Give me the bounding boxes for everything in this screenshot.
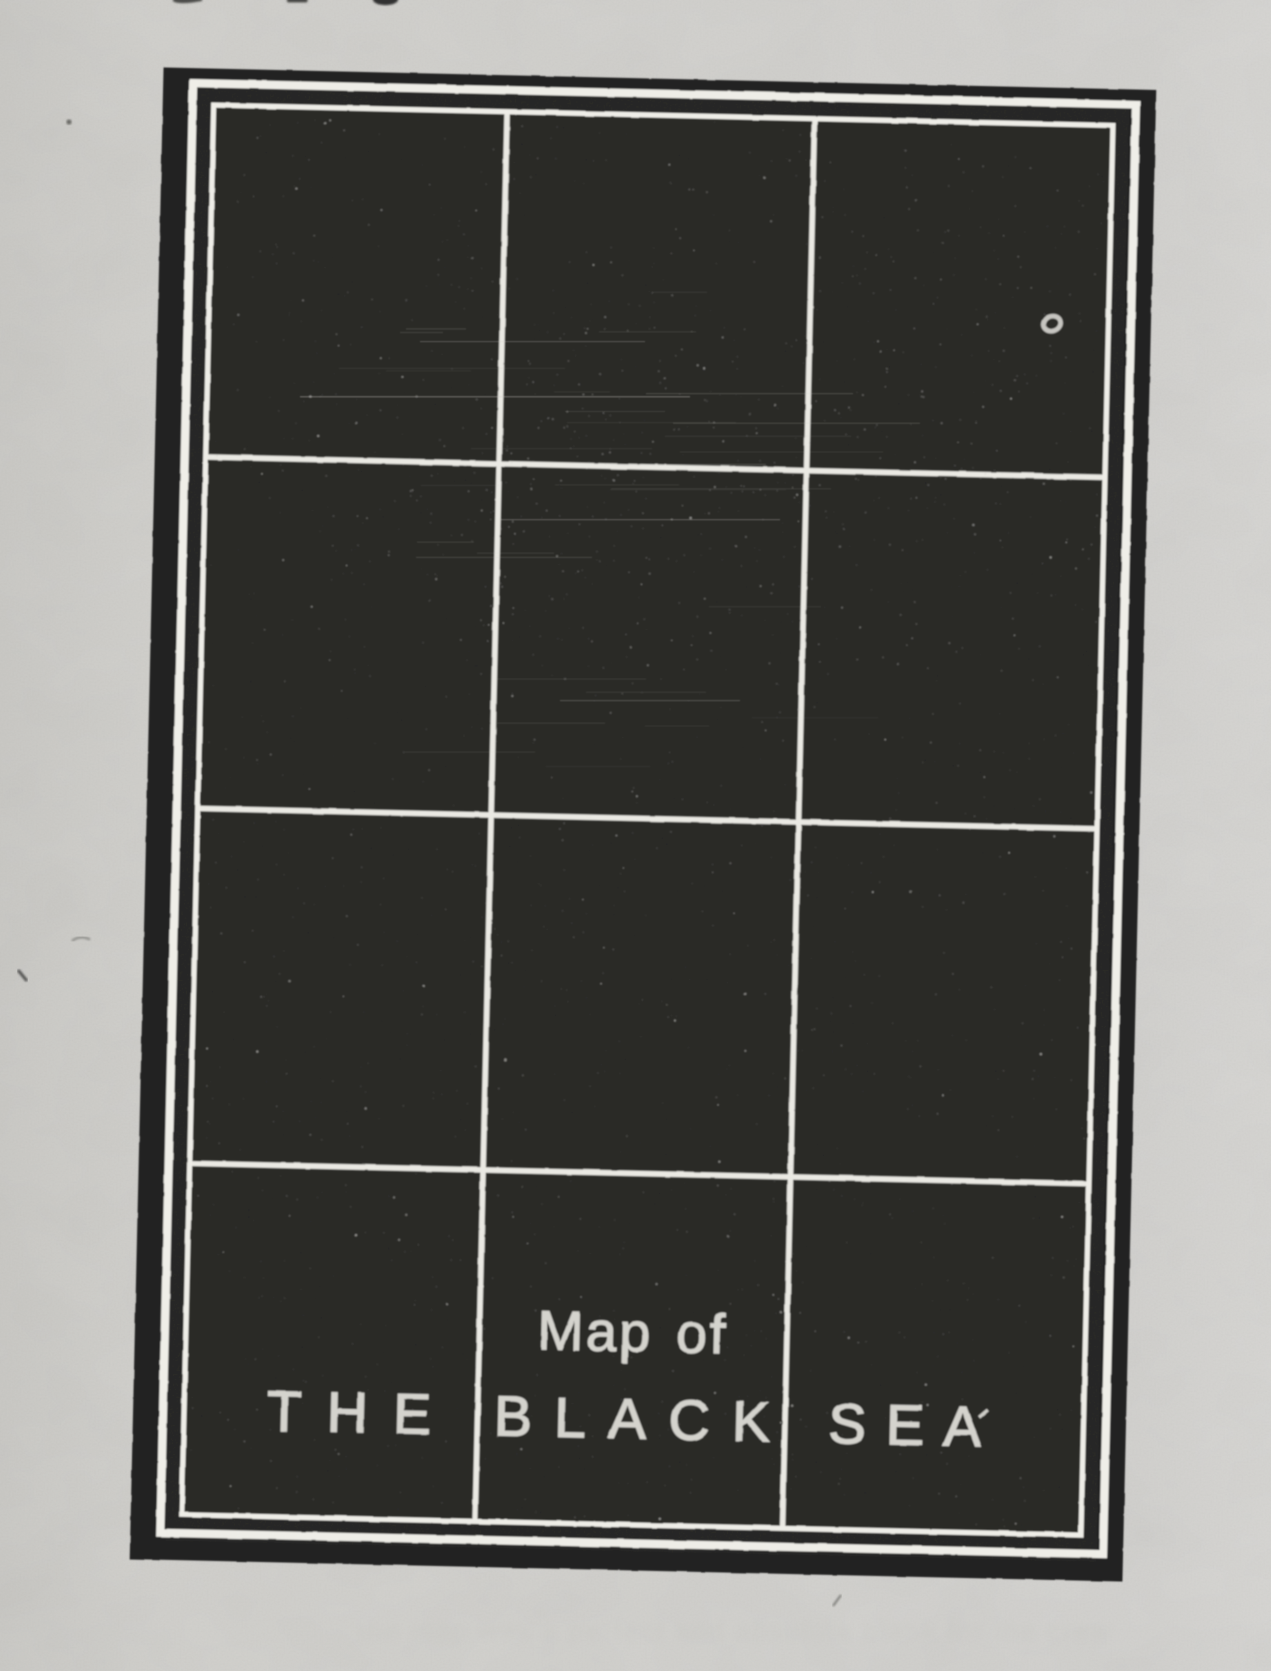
svg-text:BLACK: BLACK [493,1384,793,1455]
svg-text:THE: THE [266,1379,457,1447]
svg-text:SEA: SEA [828,1392,1002,1460]
svg-text:Map of: Map of [537,1299,729,1365]
svg-text:the map was a perfect and abso: the map was a perfect and absolute blank… [358,1616,1112,1646]
